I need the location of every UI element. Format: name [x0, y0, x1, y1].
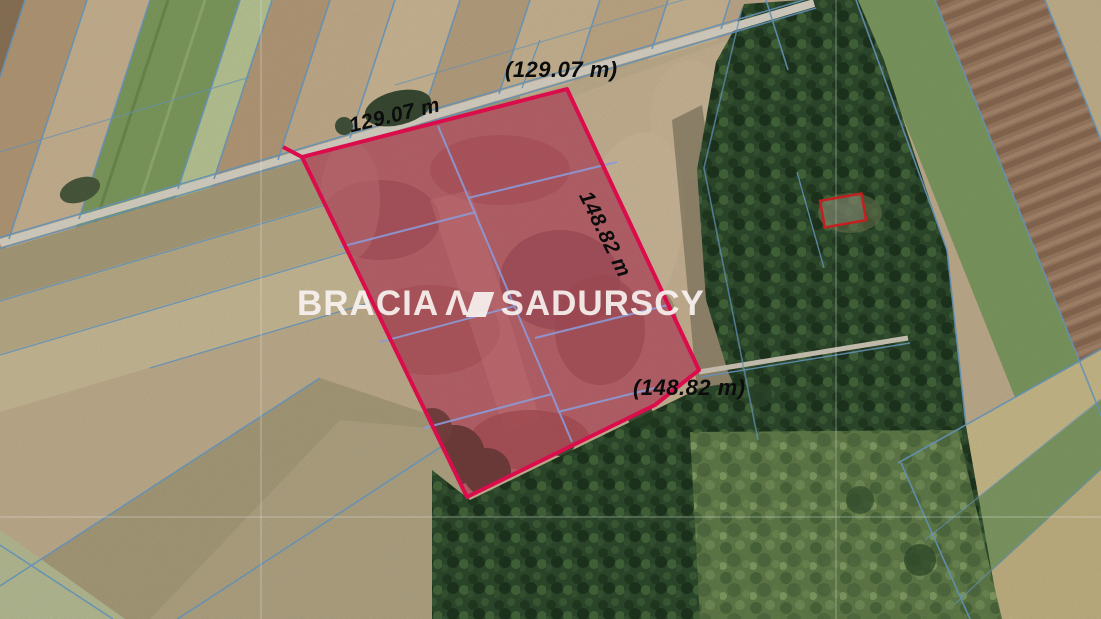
dimension-label-bottom-edge: (148.82 m): [633, 377, 746, 399]
dimension-label-road: (129.07 m): [505, 59, 618, 81]
watermark: BRACIA SADURSCY: [297, 286, 705, 321]
brand-logo-icon: [445, 286, 490, 321]
watermark-word-first: BRACIA: [297, 286, 439, 321]
watermark-word-second: SADURSCY: [500, 286, 704, 321]
listing-map-image: (129.07 m) 129.07 m 148.82 m (148.82 m) …: [0, 0, 1101, 619]
